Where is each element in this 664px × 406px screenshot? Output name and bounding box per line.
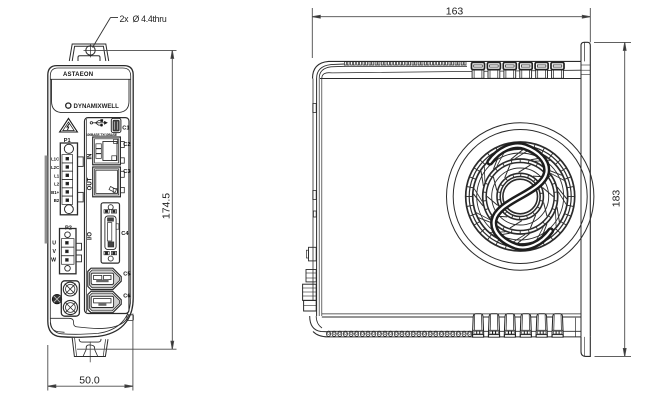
svg-text:C6: C6 <box>123 294 130 300</box>
svg-text:I/O: I/O <box>88 232 94 240</box>
svg-text:B1+: B1+ <box>51 190 59 195</box>
svg-text:L2C: L2C <box>51 165 59 170</box>
svg-text:L1: L1 <box>54 173 60 178</box>
svg-text:DYNAMIXWELL: DYNAMIXWELL <box>74 103 120 110</box>
svg-text:C2: C2 <box>123 142 130 148</box>
svg-text:W: W <box>51 257 56 263</box>
svg-text:2x Ø 4.4thru: 2x Ø 4.4thru <box>120 14 167 24</box>
svg-text:183: 183 <box>611 190 623 208</box>
svg-text:174.5: 174.5 <box>160 193 172 219</box>
svg-text:C3: C3 <box>123 169 130 175</box>
svg-text:163: 163 <box>446 6 464 18</box>
svg-text:ASTAEON: ASTAEON <box>63 72 93 78</box>
svg-text:B2: B2 <box>54 198 60 203</box>
svg-text:C5: C5 <box>123 272 130 278</box>
svg-text:C1: C1 <box>122 125 129 131</box>
svg-text:V: V <box>53 249 57 255</box>
svg-text:50.0: 50.0 <box>79 375 100 387</box>
svg-text:C4: C4 <box>121 231 129 237</box>
svg-text:L2: L2 <box>54 182 60 187</box>
svg-text:L1C: L1C <box>51 157 59 162</box>
svg-text:U: U <box>52 240 56 246</box>
